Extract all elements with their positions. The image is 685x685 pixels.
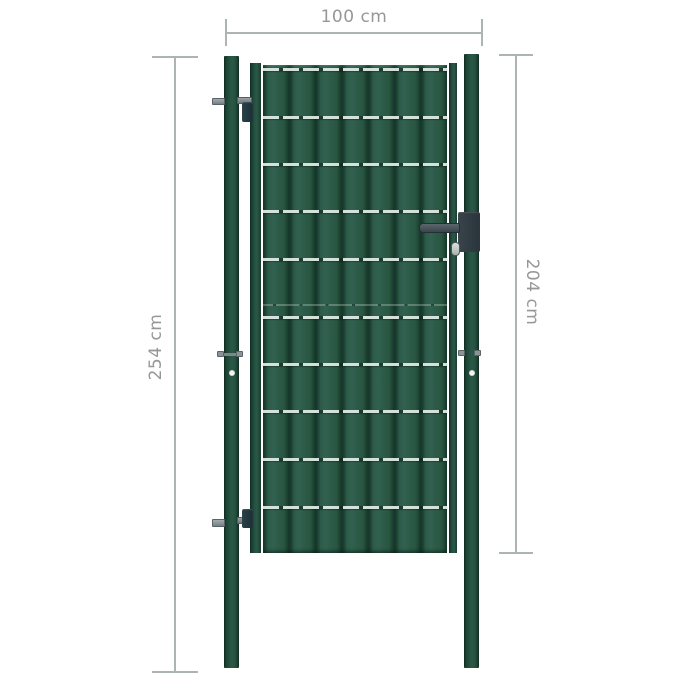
bracket-bolt	[458, 350, 465, 356]
post-height-dimension-label: 254 cm	[146, 297, 166, 397]
slat-section-seam	[263, 304, 447, 306]
mesh-wire	[263, 116, 447, 119]
lock-plate	[458, 212, 480, 252]
width-dimension-line	[226, 32, 482, 34]
gate-height-dimension-line	[515, 55, 517, 554]
mesh-wire	[263, 163, 447, 166]
post-height-dimension-tick-top	[152, 56, 198, 58]
top-hinge-bolt	[212, 98, 225, 105]
width-dimension-tick-left	[225, 19, 227, 46]
gate-height-dimension-tick-top	[499, 54, 533, 56]
gate-frame-right-bar	[449, 63, 457, 553]
mesh-wire	[263, 258, 447, 261]
gate-height-dimension-label: 204 cm	[522, 242, 542, 342]
left-post-hole	[229, 370, 235, 376]
mesh-wire	[263, 316, 447, 319]
mesh-wire	[263, 506, 447, 509]
post-height-dimension-line	[174, 57, 176, 673]
post-height-dimension-tick-bottom	[152, 671, 198, 673]
gate-frame-left-bar	[250, 63, 261, 553]
left-post	[224, 56, 239, 668]
gate-height-dimension-tick-bottom	[499, 552, 533, 554]
bracket-bolt	[474, 350, 481, 356]
product-dimension-diagram: 100 cm 254 cm 204 cm	[0, 0, 685, 685]
door-handle	[419, 223, 460, 233]
top-hinge-body	[242, 102, 253, 122]
width-dimension-label: 100 cm	[252, 7, 456, 27]
pvc-slat-panel	[263, 65, 447, 553]
bracket-bolt	[236, 351, 243, 357]
mesh-wire	[263, 458, 447, 461]
right-post-hole	[469, 370, 475, 376]
bottom-hinge-bolt	[212, 519, 225, 527]
bracket-bolt	[217, 351, 224, 357]
mesh-wire	[263, 363, 447, 366]
mesh-wire	[263, 410, 447, 413]
mesh-wire	[263, 210, 447, 213]
key-cylinder	[451, 242, 460, 256]
mesh-wire	[263, 68, 447, 71]
bottom-hinge-body	[242, 509, 253, 528]
right-post	[464, 54, 479, 668]
width-dimension-tick-right	[481, 19, 483, 46]
